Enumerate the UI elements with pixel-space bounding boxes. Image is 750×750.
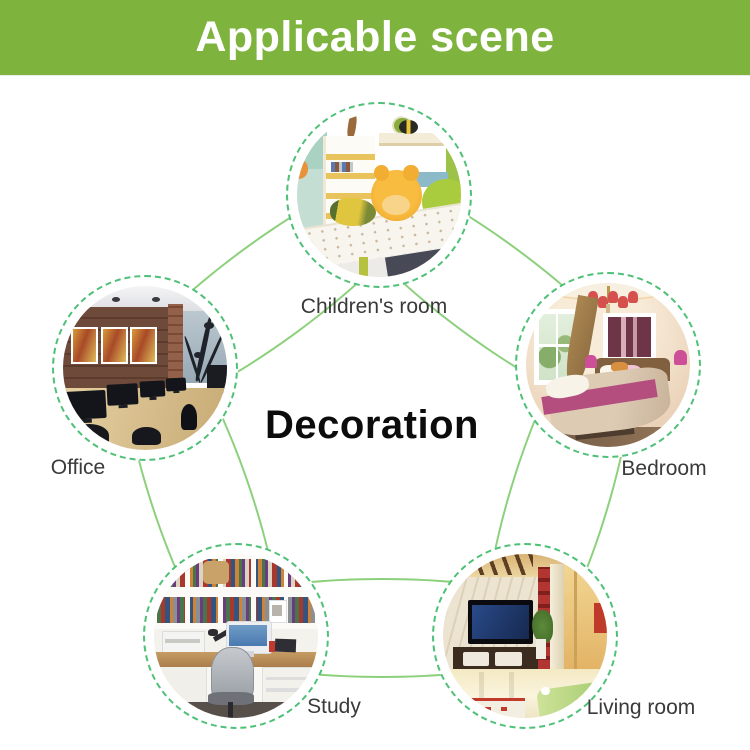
picture-frame	[130, 327, 157, 364]
printer	[162, 631, 205, 654]
books	[331, 162, 353, 173]
center-title: Decoration	[172, 403, 572, 448]
monitor	[107, 384, 139, 407]
books	[157, 597, 314, 623]
office-chair	[211, 647, 254, 698]
scene-label-office: Office	[0, 456, 158, 480]
page: Applicable scene Decoration	[0, 0, 750, 750]
table-lamp	[674, 350, 687, 365]
plant	[532, 610, 553, 643]
study-photo	[154, 554, 318, 718]
childrens-room-photo	[297, 113, 461, 277]
scene-label-living-room: Living room	[531, 696, 750, 720]
monitor	[140, 380, 165, 398]
office-chair	[70, 424, 109, 447]
office-chair	[132, 427, 162, 445]
picture-frame	[101, 327, 128, 364]
picture-frame	[71, 327, 98, 364]
plush-toy	[330, 198, 376, 226]
banner-title: Applicable scene	[0, 0, 750, 75]
books	[157, 559, 314, 587]
laptop	[275, 639, 297, 653]
monitor	[63, 390, 106, 420]
monitor	[166, 377, 186, 391]
living-room-photo	[443, 554, 607, 718]
scene-label-childrens-room: Children's room	[224, 295, 524, 319]
banner: Applicable scene	[0, 0, 750, 76]
scene-label-bedroom: Bedroom	[564, 457, 750, 481]
scene-childrens-room	[286, 102, 472, 288]
table-lamp	[585, 355, 596, 368]
tv-screen	[472, 605, 529, 639]
scene-label-study: Study	[234, 695, 434, 719]
